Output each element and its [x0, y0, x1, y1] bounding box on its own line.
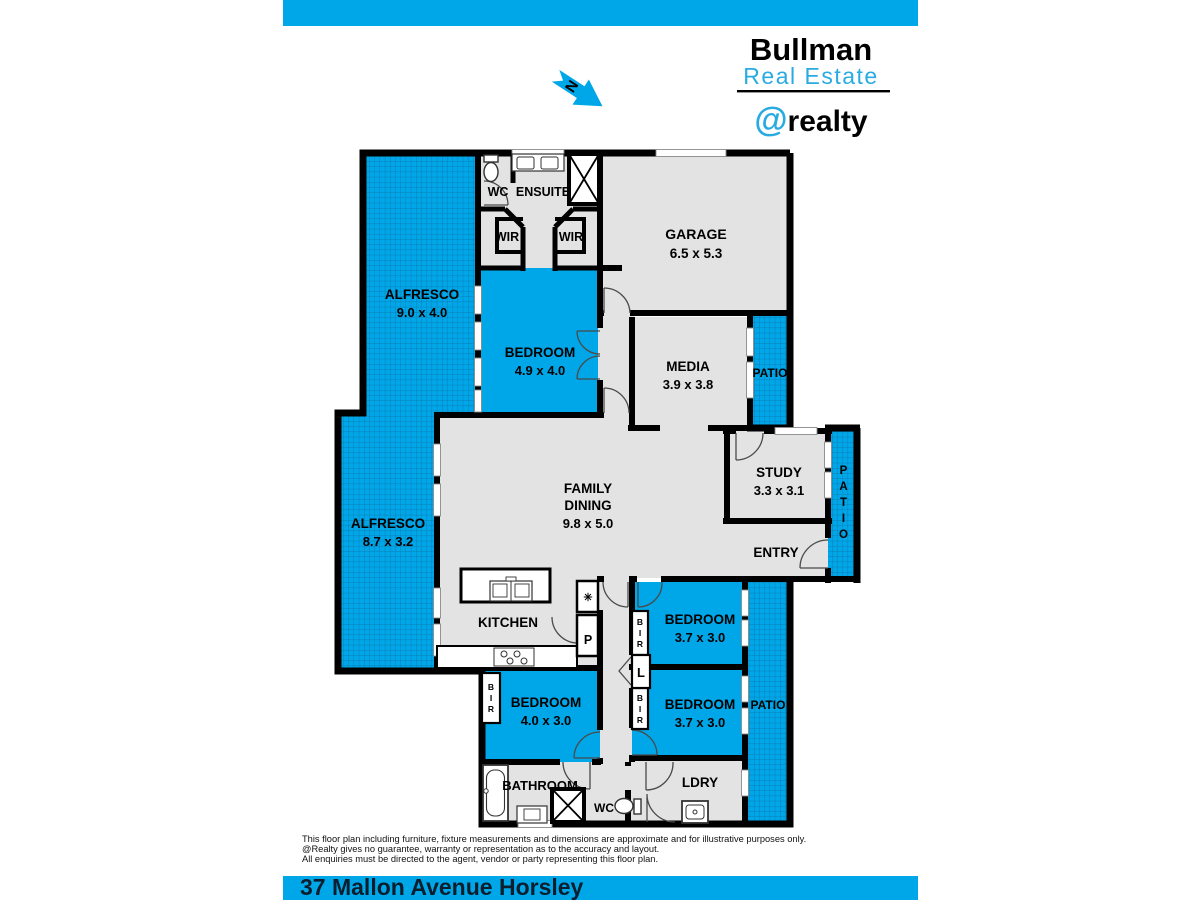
bed3-label: BEDROOM: [665, 612, 736, 627]
svg-text:P: P: [840, 465, 848, 477]
room-family-right: [632, 429, 727, 578]
kitchen-island: [461, 569, 550, 602]
wir1-label: WIR: [495, 230, 519, 244]
toilet-icon: [484, 155, 498, 182]
garage-dim: 6.5 x 5.3: [670, 246, 723, 261]
room-bedroom-1: [481, 268, 598, 415]
svg-text:I: I: [639, 704, 641, 714]
svg-text:B: B: [637, 617, 643, 627]
family-label-1: FAMILY: [564, 481, 612, 496]
kitchen-bench: [437, 646, 577, 668]
alfresco1-dim: 9.0 x 4.0: [397, 305, 448, 320]
address-text: 37 Mallon Avenue Horsley: [300, 874, 584, 900]
bathroom-label: BATHROOM: [502, 778, 578, 793]
disclaimer-line-2: @Realty gives no guarantee, warranty or …: [302, 844, 659, 854]
disclaimer-line-1: This floor plan including furniture, fix…: [302, 834, 806, 844]
svg-text:A: A: [839, 481, 847, 493]
hallway-bedrooms: [598, 578, 632, 825]
svg-text:R: R: [637, 715, 643, 725]
disclaimer-line-3: All enquiries must be directed to the ag…: [302, 854, 658, 864]
svg-text:I: I: [639, 628, 641, 638]
top-bar: [283, 0, 918, 26]
wc-top-label: WC: [488, 185, 509, 199]
patio-entry-label: P A T I O: [839, 465, 848, 541]
room-alfresco-1: [363, 153, 478, 415]
alfresco1-label: ALFRESCO: [385, 287, 459, 302]
wir2-label: WIR: [559, 230, 583, 244]
patio-bed-label: PATIO: [751, 698, 786, 712]
garage-label: GARAGE: [665, 226, 726, 242]
brand-name: Bullman: [750, 32, 872, 67]
family-dim: 9.8 x 5.0: [563, 516, 614, 531]
laundry-trough-icon: [682, 801, 708, 823]
media-label: MEDIA: [666, 359, 710, 374]
patio-media-label: PATIO: [753, 366, 788, 380]
svg-text:B: B: [488, 682, 494, 692]
garage-door: [656, 150, 726, 157]
north-arrow-icon: N: [547, 63, 610, 119]
logo-divider: [737, 90, 890, 92]
svg-text:I: I: [842, 513, 845, 525]
linen-label: L: [637, 665, 645, 680]
media-dim: 3.9 x 3.8: [663, 377, 714, 392]
toilet2-icon: [615, 799, 641, 815]
kitchen-label: KITCHEN: [478, 615, 538, 630]
bed3-dim: 3.7 x 3.0: [675, 630, 726, 645]
bed2-label: BEDROOM: [511, 695, 582, 710]
pantry-label: P: [584, 633, 592, 647]
double-vanity-icon: [512, 154, 564, 171]
svg-text:R: R: [637, 639, 643, 649]
laundry-label: LDRY: [682, 775, 718, 790]
study-dim: 3.3 x 3.1: [754, 483, 805, 498]
svg-text:B: B: [637, 693, 643, 703]
disclaimer: This floor plan including furniture, fix…: [302, 834, 806, 864]
svg-text:O: O: [839, 529, 848, 541]
study-label: STUDY: [756, 465, 802, 480]
floor-plan-page: 37 Mallon Avenue Horsley Bullman Real Es…: [0, 0, 1200, 900]
alfresco2-label: ALFRESCO: [351, 516, 425, 531]
family-label-2: DINING: [564, 498, 611, 513]
bathroom-vanity-icon: [517, 806, 547, 823]
floor-plan-canvas: 37 Mallon Avenue Horsley Bullman Real Es…: [0, 0, 1200, 900]
bed4-label: BEDROOM: [665, 697, 736, 712]
wc-bottom-label: WC: [594, 801, 614, 815]
alfresco2-dim: 8.7 x 3.2: [363, 534, 414, 549]
brand-logo: Bullman Real Estate @realty: [737, 32, 890, 139]
brand-subtitle: Real Estate: [743, 63, 878, 89]
shower2-icon: [552, 789, 584, 822]
svg-text:R: R: [488, 704, 494, 714]
svg-text:T: T: [840, 497, 847, 509]
ensuite-label: ENSUITE: [516, 185, 570, 199]
svg-text:I: I: [490, 693, 492, 703]
bed4-dim: 3.7 x 3.0: [675, 715, 726, 730]
bathtub-icon: [483, 765, 508, 821]
fan-icon: ✳: [583, 592, 592, 604]
bed1-label: BEDROOM: [505, 345, 576, 360]
atrealty-logo: @realty: [754, 101, 868, 139]
bed1-dim: 4.9 x 4.0: [515, 363, 566, 378]
bed2-dim: 4.0 x 3.0: [521, 713, 572, 728]
shower-icon: [569, 154, 599, 204]
entry-label: ENTRY: [753, 545, 798, 560]
